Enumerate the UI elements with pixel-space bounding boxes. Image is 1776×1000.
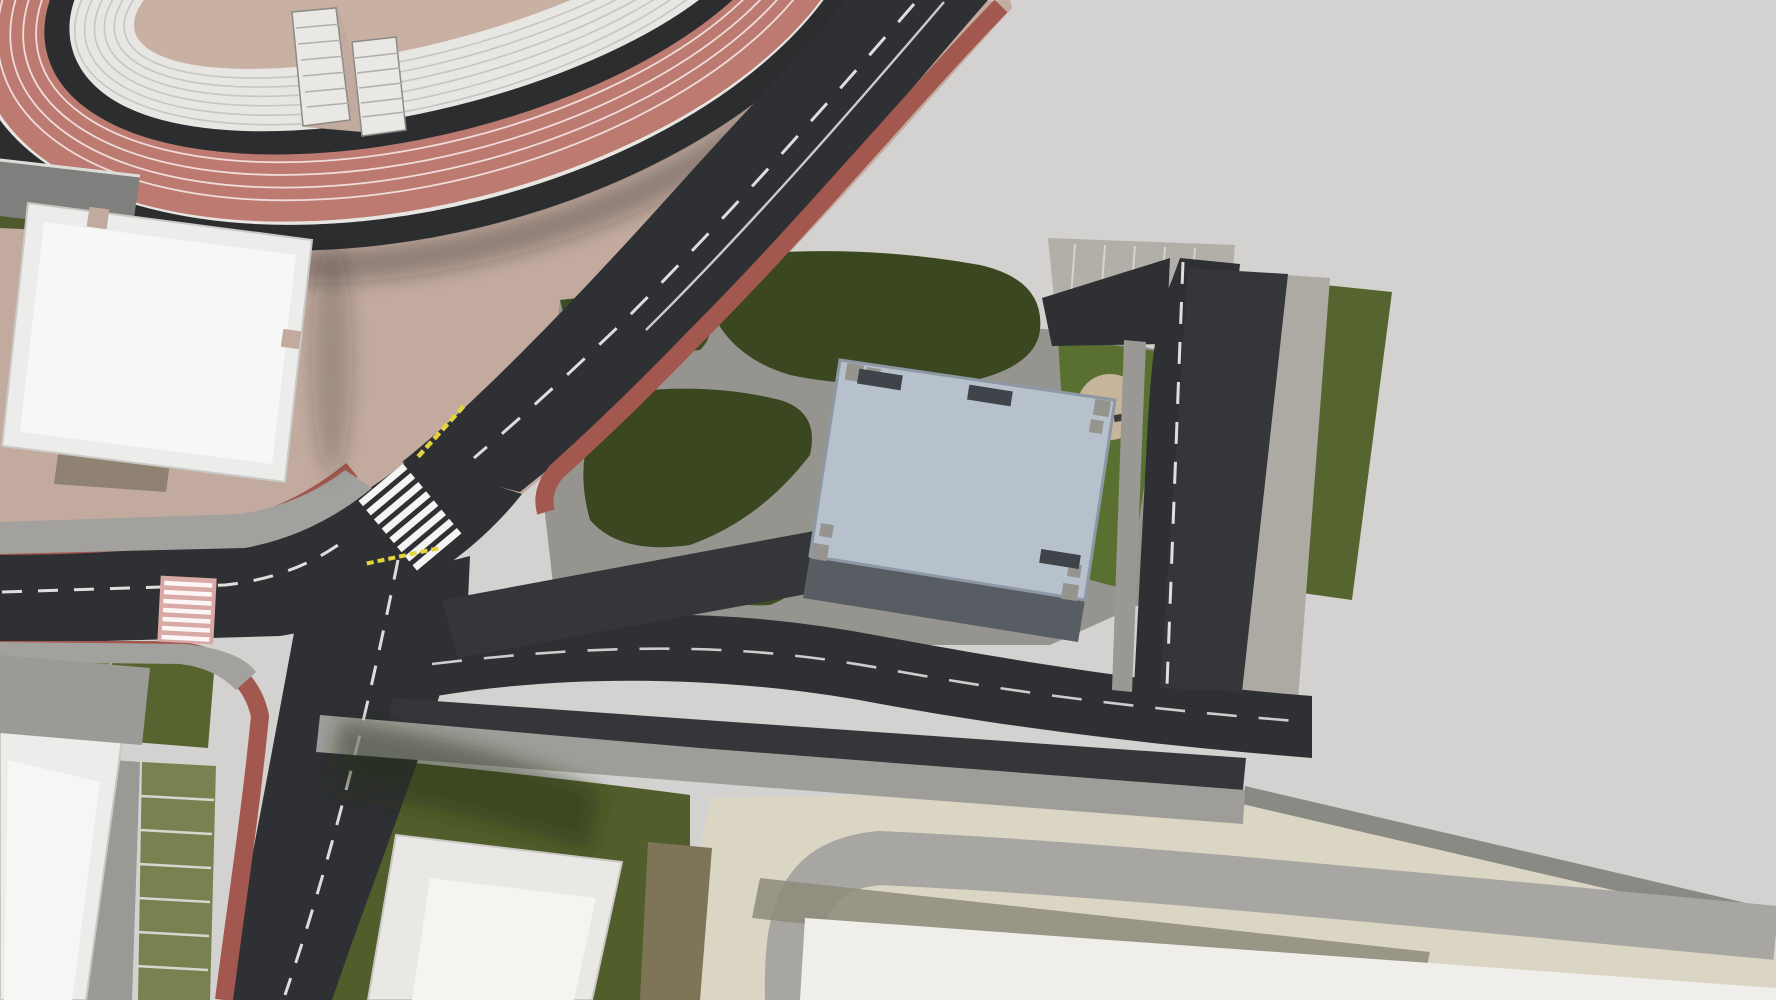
building-notch (87, 207, 110, 230)
paving-sw-building (0, 655, 150, 745)
pink-crosswalk (157, 576, 216, 645)
building-shadow-b1 (312, 245, 352, 475)
site-plan-svg (0, 0, 1776, 1000)
aerial-site-render (0, 0, 1776, 1000)
building-notch (281, 329, 301, 349)
white-building-nw-tier (20, 222, 296, 464)
white-building-south-tier (412, 878, 596, 1000)
tan-path-south (640, 842, 712, 1000)
office-building[interactable] (803, 360, 1115, 642)
stair-east (352, 37, 406, 136)
